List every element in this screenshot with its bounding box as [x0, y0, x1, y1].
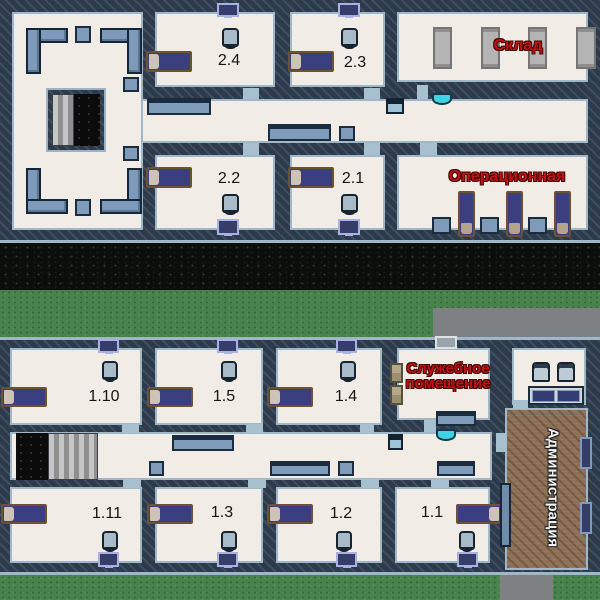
stool	[149, 461, 164, 476]
door	[248, 479, 266, 488]
stool	[338, 461, 354, 476]
window	[338, 219, 360, 235]
room-admin-label: Администрация	[545, 424, 562, 552]
sink	[432, 93, 452, 105]
wall-table	[172, 435, 234, 451]
room-1-3-floor	[155, 487, 263, 563]
room-1-11-floor	[10, 487, 142, 563]
window	[98, 552, 119, 567]
window	[98, 339, 119, 353]
toilet	[221, 531, 237, 550]
door	[243, 88, 259, 99]
bench	[437, 461, 475, 476]
stair-void	[74, 94, 100, 146]
chair	[532, 362, 550, 382]
bed	[267, 387, 313, 407]
side-table	[528, 217, 547, 234]
window	[336, 339, 357, 353]
bed	[1, 387, 47, 407]
room-2-2-label: 2.2	[213, 170, 245, 188]
concrete-path	[500, 573, 553, 600]
room-2-1-label: 2.1	[337, 170, 369, 188]
bed	[147, 387, 193, 407]
window	[338, 3, 360, 17]
room-2-4-label: 2.4	[213, 52, 245, 70]
toilet	[102, 531, 118, 550]
corner-bench	[127, 28, 142, 74]
entrance-door	[435, 336, 457, 349]
window	[217, 339, 238, 353]
stool	[123, 77, 139, 92]
toilet	[102, 361, 118, 380]
nightstand	[388, 434, 403, 450]
bed	[146, 167, 192, 188]
room-1-10-label: 1.10	[86, 388, 122, 406]
room-2-3-label: 2.3	[339, 54, 371, 72]
bed	[146, 51, 192, 72]
stairs	[52, 94, 74, 146]
room-oper-label: Операционная	[448, 169, 566, 184]
room-1-3-label: 1.3	[206, 504, 238, 522]
bed	[456, 504, 502, 524]
reception-desk	[528, 386, 584, 405]
hospital-map: 2.4 2.3 Склад 2.2 2.1 Операционная	[0, 0, 600, 600]
door	[513, 400, 528, 409]
toilet	[336, 531, 352, 550]
operating-table	[506, 191, 523, 237]
operating-table	[554, 191, 571, 237]
corner-bench	[100, 199, 142, 214]
wall-edge	[0, 240, 600, 243]
bed	[1, 504, 47, 524]
asphalt-road	[0, 243, 600, 290]
wall-table	[436, 411, 476, 426]
room-sluzh-label: Служебное помещение	[400, 361, 496, 391]
door	[431, 479, 449, 488]
corner-bench	[26, 199, 68, 214]
bed	[147, 504, 193, 524]
window	[457, 552, 478, 567]
toilet	[341, 194, 358, 213]
room-1-1-label: 1.1	[416, 504, 448, 522]
side-table	[432, 217, 451, 234]
door	[243, 143, 259, 155]
chair	[557, 362, 575, 382]
door	[122, 424, 139, 433]
room-1-5-label: 1.5	[208, 388, 240, 406]
stair-void	[16, 433, 48, 480]
door	[496, 433, 507, 452]
wall-table	[147, 98, 211, 115]
bench	[270, 461, 330, 476]
room-1-11-label: 1.11	[89, 505, 125, 523]
bench	[268, 124, 331, 141]
bed	[288, 51, 334, 72]
stairs	[48, 433, 98, 480]
side-table	[480, 217, 499, 234]
toilet	[340, 361, 356, 380]
stool	[75, 26, 91, 43]
window	[217, 219, 239, 235]
desk-top	[532, 390, 555, 402]
storage-rack	[576, 27, 596, 69]
door	[417, 85, 428, 99]
operating-table	[458, 191, 475, 237]
storage-rack	[433, 27, 452, 69]
toilet	[459, 531, 475, 550]
corner-bench	[26, 28, 41, 74]
nightstand	[386, 98, 404, 114]
window	[336, 552, 357, 567]
toilet	[221, 361, 237, 380]
room-1-2-label: 1.2	[325, 505, 357, 523]
door	[420, 143, 437, 155]
wall-edge	[0, 572, 600, 575]
stool	[123, 146, 139, 161]
door	[123, 479, 141, 488]
bed	[267, 504, 313, 524]
stairwell	[46, 88, 106, 152]
room-1-4-label: 1.4	[330, 388, 362, 406]
room-2-4-floor	[155, 12, 275, 87]
desk-top	[557, 390, 580, 402]
concrete-pad	[433, 308, 600, 337]
window	[217, 3, 239, 17]
stool	[75, 199, 91, 216]
window	[580, 502, 592, 534]
bed	[288, 167, 334, 188]
toilet	[222, 194, 239, 213]
stool	[339, 126, 355, 141]
wall-edge	[0, 337, 600, 340]
window	[217, 552, 238, 567]
door	[360, 424, 374, 433]
door	[361, 479, 379, 488]
room-sklad-label: Склад	[484, 38, 552, 53]
room-2-3-floor	[290, 12, 385, 87]
room-1-2-floor	[276, 487, 382, 563]
bench	[500, 483, 511, 547]
window	[580, 437, 592, 469]
sink	[436, 429, 456, 441]
door	[424, 420, 436, 432]
toilet	[222, 28, 239, 47]
toilet	[341, 28, 358, 47]
door	[364, 88, 380, 99]
door	[246, 424, 263, 433]
door	[364, 143, 380, 155]
